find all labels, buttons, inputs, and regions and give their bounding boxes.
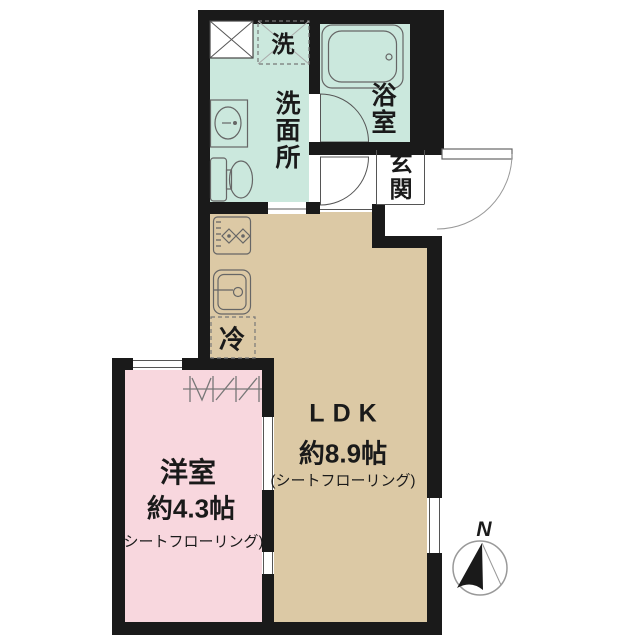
window-western-top bbox=[133, 358, 182, 370]
wall-washroom-bottom bbox=[198, 202, 268, 214]
entrance-label: 玄関 bbox=[382, 151, 416, 203]
ldk-flooring-label: (シートフローリング) bbox=[271, 470, 416, 491]
wall-ldk-left bbox=[198, 215, 210, 362]
washing-machine-label: 洗 bbox=[272, 25, 295, 59]
refrigerator-label: 冷 bbox=[219, 320, 245, 357]
front-door bbox=[437, 149, 512, 229]
wall-washroom-bottom-stub bbox=[306, 202, 320, 214]
wall-partition-a bbox=[262, 370, 274, 417]
ldk-size-label: 約8.9帖 bbox=[299, 434, 387, 471]
wall-bottom bbox=[112, 622, 442, 635]
bathroom-label: 浴室 bbox=[364, 82, 400, 136]
ldk-name-label: LDK bbox=[309, 400, 384, 429]
washroom-label: 洗面所 bbox=[268, 90, 304, 171]
wall-western-top-b bbox=[182, 358, 274, 370]
window-ldk-right bbox=[427, 498, 442, 553]
wall-western-left bbox=[112, 358, 125, 635]
washroom-door-arc bbox=[321, 157, 369, 205]
north-compass-icon bbox=[453, 541, 507, 595]
wall-western-top-a bbox=[112, 358, 133, 370]
entrance-step-floor bbox=[385, 204, 425, 237]
wall-right-mid bbox=[427, 236, 442, 498]
western-room-name-label: 洋室 bbox=[160, 451, 216, 491]
north-label: N bbox=[476, 518, 491, 542]
wall-washroom-bathroom bbox=[309, 10, 320, 94]
pipe-space bbox=[210, 21, 253, 58]
floor-plan: 洗 洗面所 浴室 玄関 冷 LDK 約8.9帖 (シートフローリング) 洋室 約… bbox=[0, 0, 640, 640]
wall-right-upper bbox=[410, 10, 444, 150]
wall-partition-c bbox=[262, 574, 274, 622]
partition-opening-lower bbox=[262, 552, 274, 574]
wall-partition-b bbox=[262, 490, 274, 552]
western-room-flooring-label: (シートフローリング) bbox=[119, 531, 264, 552]
washroom-doorway-gap bbox=[268, 202, 306, 214]
wall-left-upper bbox=[198, 10, 210, 215]
floor-plan-drawing bbox=[0, 0, 640, 640]
western-room-size-label: 約4.3帖 bbox=[147, 489, 235, 526]
